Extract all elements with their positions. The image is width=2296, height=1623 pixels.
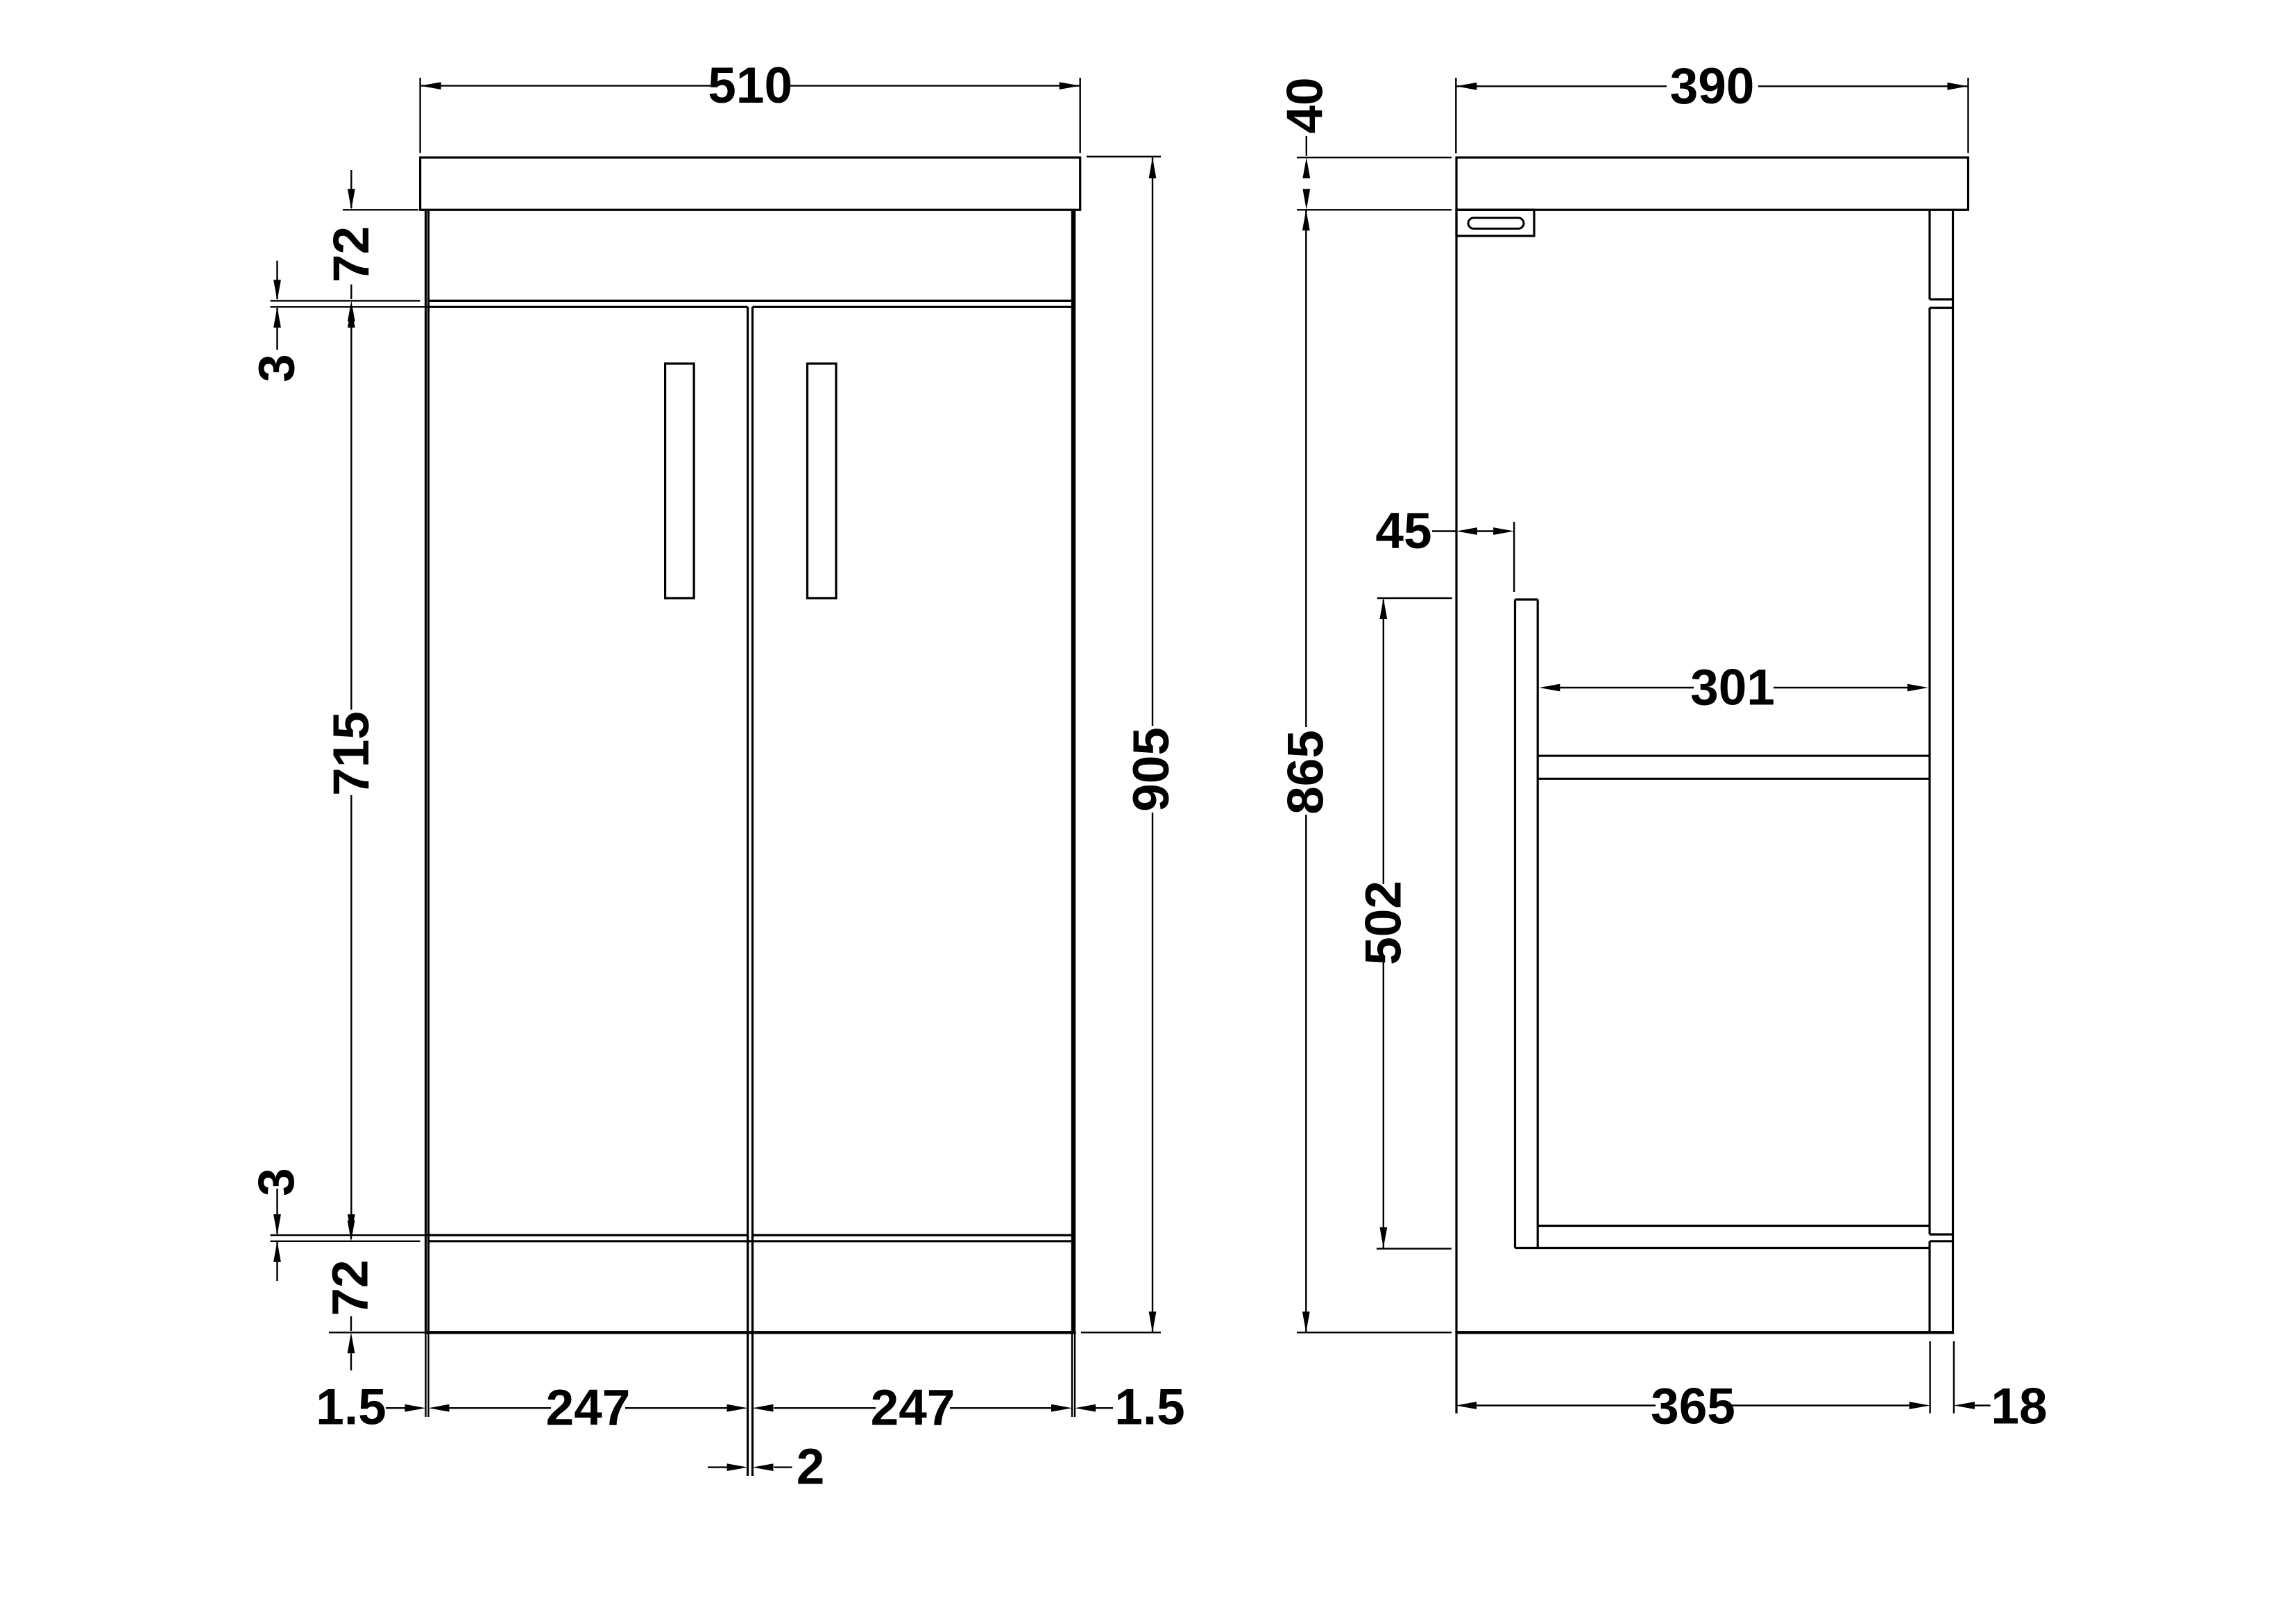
svg-text:502: 502 bbox=[1355, 881, 1411, 965]
svg-text:365: 365 bbox=[1651, 1379, 1735, 1435]
svg-text:715: 715 bbox=[323, 711, 380, 796]
svg-text:247: 247 bbox=[871, 1380, 955, 1436]
svg-text:40: 40 bbox=[1277, 77, 1334, 133]
svg-text:390: 390 bbox=[1670, 58, 1755, 114]
svg-text:865: 865 bbox=[1278, 730, 1334, 815]
svg-text:18: 18 bbox=[1991, 1379, 2047, 1435]
svg-text:72: 72 bbox=[323, 1259, 379, 1316]
svg-text:247: 247 bbox=[546, 1380, 631, 1436]
svg-text:1.5: 1.5 bbox=[316, 1379, 386, 1436]
svg-text:301: 301 bbox=[1690, 660, 1775, 716]
svg-text:905: 905 bbox=[1123, 727, 1180, 812]
svg-text:2: 2 bbox=[797, 1439, 825, 1495]
svg-text:3: 3 bbox=[249, 354, 305, 382]
svg-text:510: 510 bbox=[708, 58, 792, 114]
svg-text:72: 72 bbox=[323, 226, 380, 282]
svg-text:45: 45 bbox=[1375, 503, 1431, 559]
svg-text:1.5: 1.5 bbox=[1114, 1379, 1184, 1436]
